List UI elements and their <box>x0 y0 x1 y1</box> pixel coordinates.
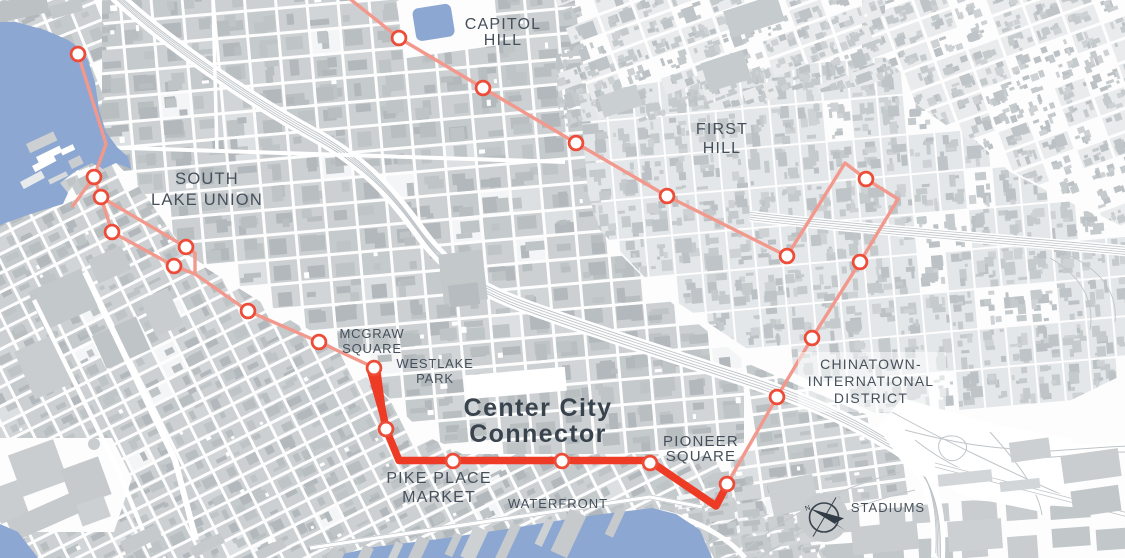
svg-text:STADIUMS: STADIUMS <box>851 500 925 515</box>
svg-text:WATERFRONT: WATERFRONT <box>508 496 608 511</box>
svg-text:MCGRAWSQUARE: MCGRAWSQUARE <box>340 326 405 356</box>
svg-text:Center CityConnector: Center CityConnector <box>464 394 613 448</box>
svg-text:PIONEERSQUARE: PIONEERSQUARE <box>663 433 739 465</box>
